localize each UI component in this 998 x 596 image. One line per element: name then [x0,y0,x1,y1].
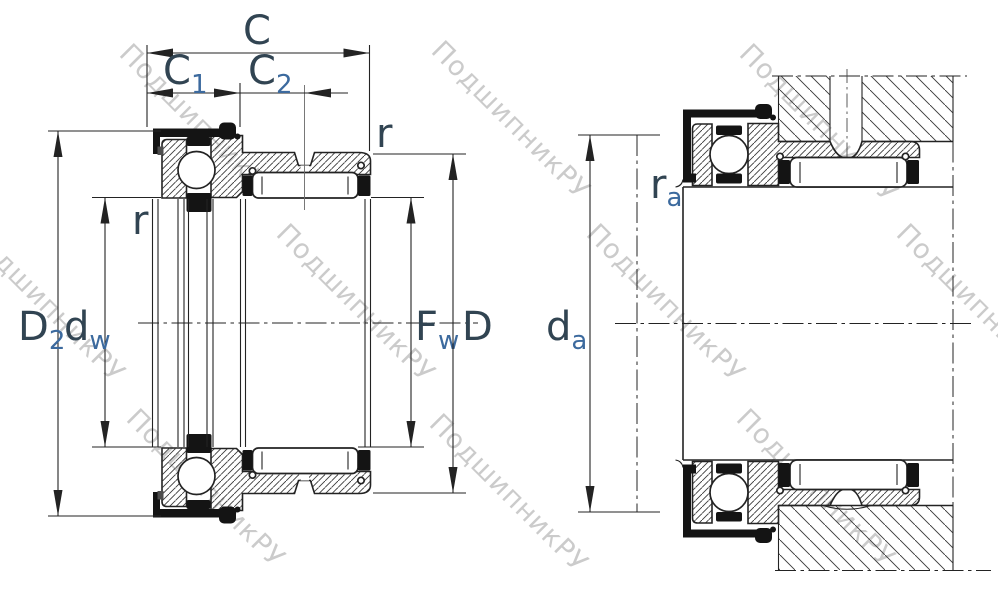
roller-seal-right [907,463,919,487]
label-r-left: r [132,198,149,244]
roller-seal-right [358,450,371,471]
drawing-canvas: ПодшипникРУ ПодшипникРУ ПодшипникРУ Подш… [0,0,998,596]
bearing-cap [683,110,758,118]
cap-foot [683,465,696,474]
roller-seal-left [779,160,791,184]
roller-seal-left [243,450,253,471]
roller-seal-left [243,176,253,197]
ball-cage-top [187,434,212,453]
ball-cage-top [716,126,742,136]
cap-hook [235,134,241,140]
label-r-right: r [376,111,393,157]
left-view-bearing-section: C C1 C2 r r D2 dw [18,8,493,524]
cap-flange [683,110,691,183]
axial-ball [710,474,748,512]
needle-rollers [790,460,907,490]
bearing-technical-drawing: ПодшипникРУ ПодшипникРУ ПодшипникРУ Подш… [0,0,998,596]
cap-crimp [755,528,772,543]
watermark-text: ПодшипникРУ [580,218,751,389]
label-C1: C1 [163,48,207,100]
axial-ball [178,458,215,495]
ball-cage-top [187,137,211,146]
bearing-cap [153,129,221,138]
cap-crimp [219,507,236,524]
fillet-dot [249,472,255,478]
fillet-dot [358,477,364,483]
fillet-dot [902,153,908,159]
fillet-dot [777,487,783,493]
fillet-dot [777,153,783,159]
ball-cage-bottom [187,500,211,509]
ball-cage-bottom [187,193,212,212]
right-view-mounted-section: da ra [546,69,991,571]
axial-ball [710,136,748,174]
needle-rollers [253,173,359,199]
bearing-cap [153,509,221,518]
cap-crimp [219,123,236,140]
cap-flange [683,465,691,538]
roller-seal-right [907,160,919,184]
cap-hook [770,527,776,533]
cap-crimp [755,104,772,119]
fillet-dot [902,487,908,493]
label-D: D [462,304,493,350]
ball-cage-bottom [716,174,742,184]
bearing-cap [683,530,758,538]
label-C2: C2 [248,48,292,100]
axial-ball [178,152,215,189]
ball-cage-bottom [716,512,742,522]
left-top-section [153,123,371,213]
housing-bottom [775,506,991,571]
cap-seal [158,147,164,156]
left-bottom-section [153,434,371,524]
needle-rollers [253,448,359,474]
label-da: da [546,304,587,356]
cap-hook [235,507,241,513]
cap-seal [158,491,164,500]
watermark-layer: ПодшипникРУ ПодшипникРУ ПодшипникРУ Подш… [0,35,998,579]
watermark-text: ПодшипникРУ [890,218,998,389]
fillet-dot [358,162,364,168]
watermark-text: ПодшипникРУ [425,35,596,206]
ball-cage-top [716,464,742,474]
cap-hook [770,115,776,121]
cap-foot [683,174,696,183]
needle-rollers [790,158,907,188]
label-ra: ra [650,162,682,213]
roller-seal-right [358,176,371,197]
roller-seal-left [779,463,791,487]
label-dw: dw [64,304,111,356]
fillet-dot [249,168,255,174]
